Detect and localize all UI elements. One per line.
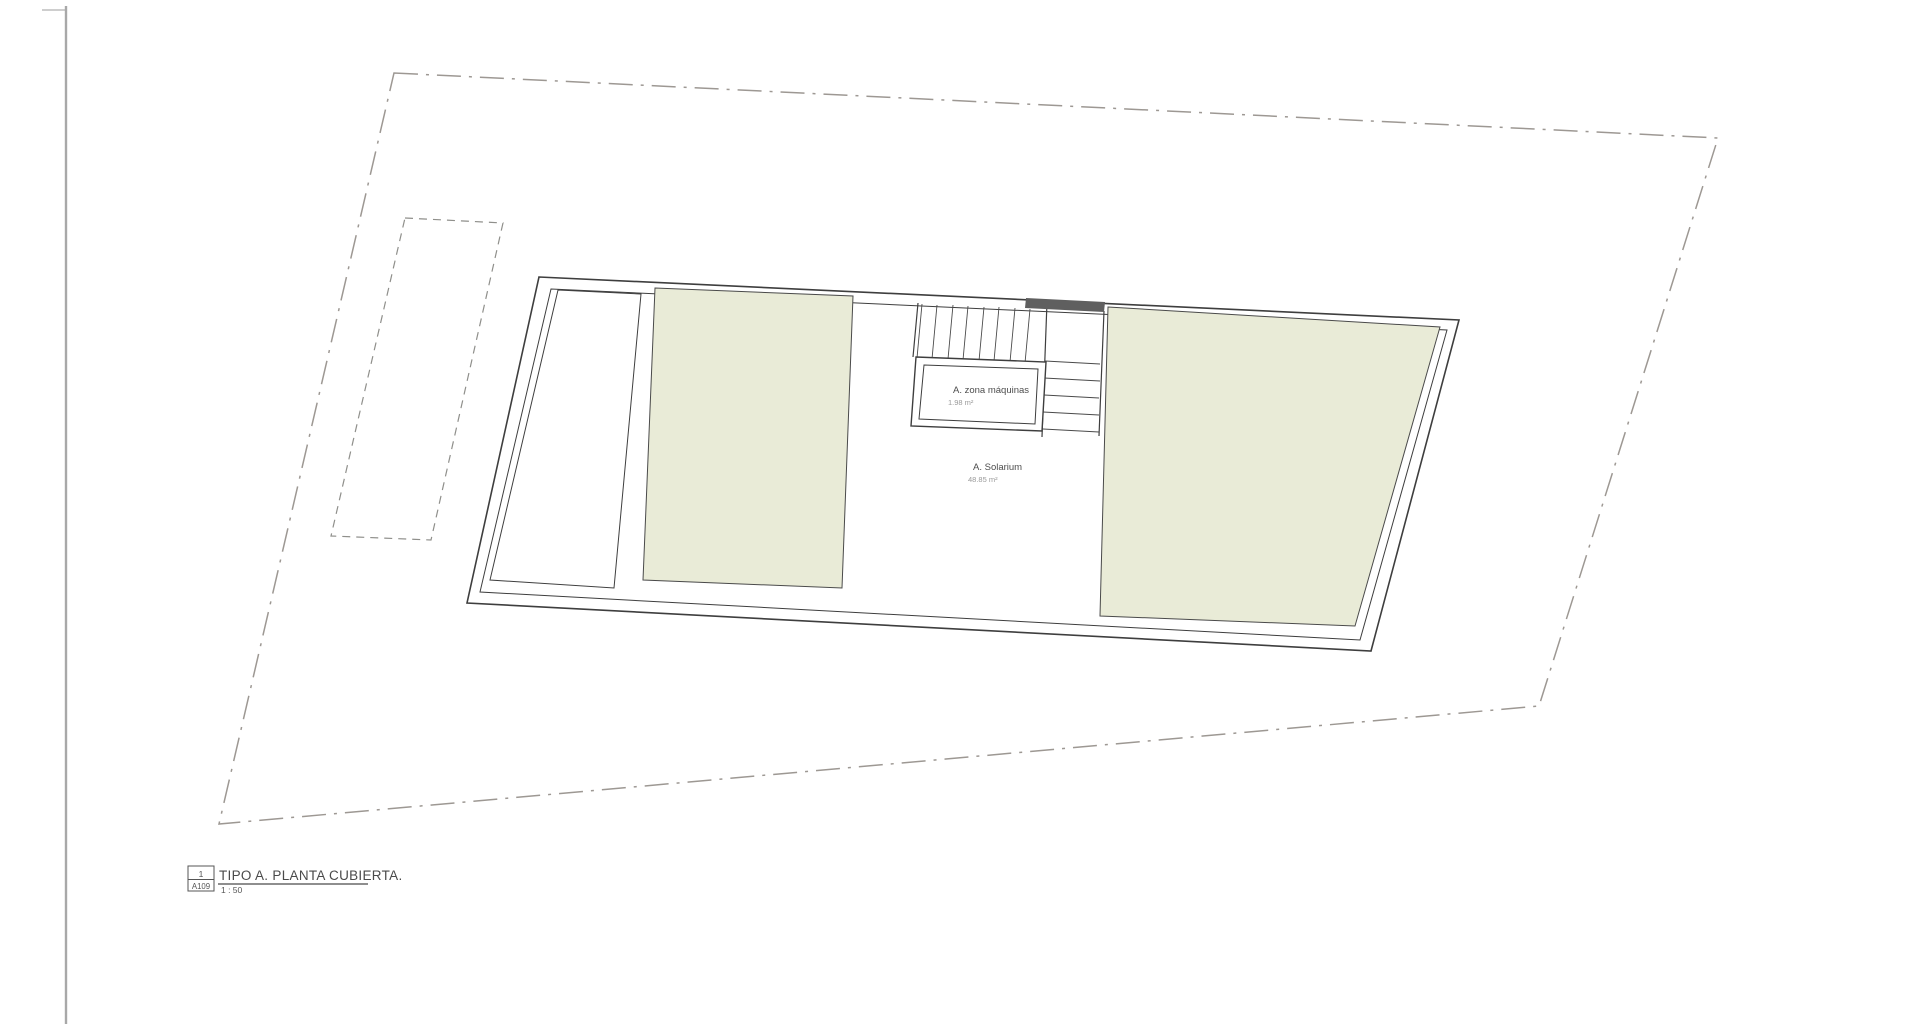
- machine-zone-label: A. zona máquinas: [953, 385, 1029, 396]
- drawing-scale: 1 : 50: [221, 885, 243, 895]
- title-block: 1 A109 TIPO A. PLANTA CUBIERTA. 1 : 50: [188, 866, 403, 895]
- solarium-label: A. Solarium: [973, 462, 1022, 473]
- drawing-sheet: A. zona máquinas 1.98 m² A. Solarium 48.…: [0, 0, 1920, 1024]
- left-roof-terrace: [643, 288, 853, 588]
- machine-zone-area: 1.98 m²: [948, 398, 974, 407]
- dashed-structure-outline: [331, 218, 503, 540]
- floor-plan-canvas: A. zona máquinas 1.98 m² A. Solarium 48.…: [0, 0, 1920, 1024]
- solarium-area: 48.85 m²: [968, 475, 998, 484]
- drawing-title: TIPO A. PLANTA CUBIERTA.: [219, 868, 403, 883]
- building: A. zona máquinas 1.98 m² A. Solarium 48.…: [467, 277, 1459, 651]
- detail-number: 1: [199, 869, 204, 879]
- sheet-code: A109: [192, 882, 210, 891]
